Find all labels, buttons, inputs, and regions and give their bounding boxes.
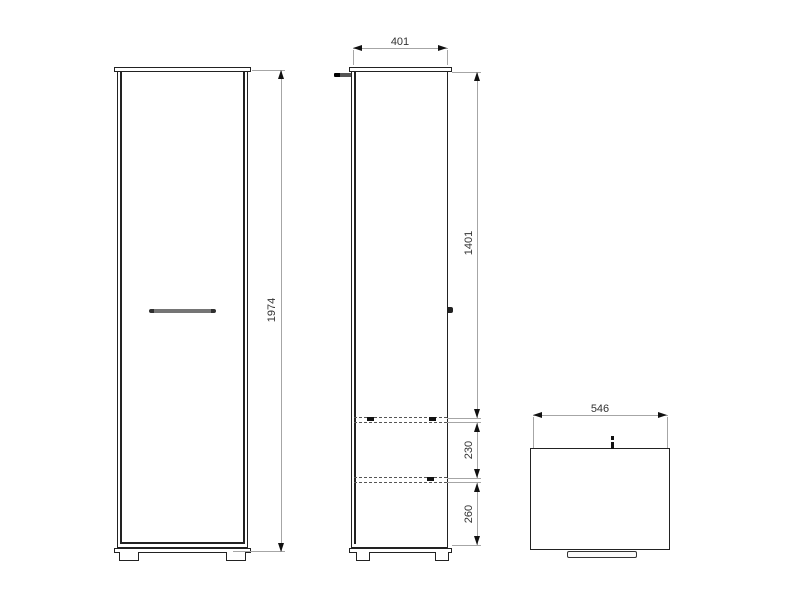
top-extension-right bbox=[667, 417, 668, 448]
top-width-arrow-left-icon bbox=[533, 412, 542, 418]
top-view-plinth-bar bbox=[567, 551, 637, 558]
top-view: 546 bbox=[0, 0, 800, 600]
top-view-handle-mark bbox=[611, 436, 614, 449]
top-width-arrow-right-icon bbox=[658, 412, 667, 418]
top-width-dimension-label: 546 bbox=[570, 402, 630, 416]
top-extension-left bbox=[533, 417, 534, 448]
technical-drawing-canvas: 1974 401 1401 bbox=[0, 0, 800, 600]
top-view-body bbox=[530, 448, 670, 550]
top-width-dimension-line bbox=[533, 415, 668, 416]
